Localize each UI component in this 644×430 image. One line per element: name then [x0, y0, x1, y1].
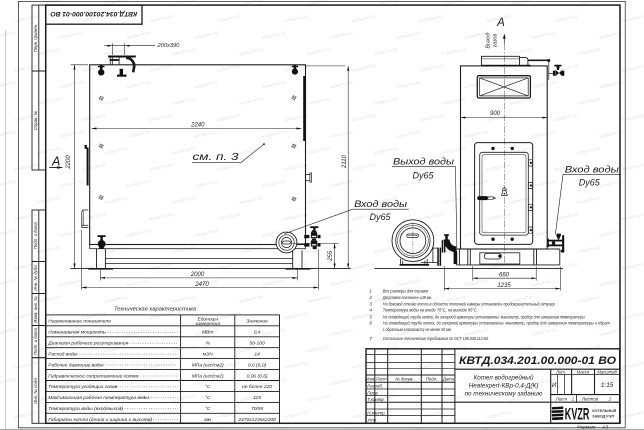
svg-text:Dy65: Dy65: [579, 177, 601, 187]
svg-text:1:15: 1:15: [601, 382, 614, 389]
svg-text:2000: 2000: [190, 272, 205, 278]
svg-text:50-100: 50-100: [249, 341, 265, 347]
svg-text:14: 14: [254, 351, 260, 357]
svg-text:Температура воды на входе 70°С: Температура воды на входе 70°С, на выход…: [383, 308, 478, 313]
svg-text:Dy65: Dy65: [369, 212, 391, 222]
svg-text:мм: мм: [204, 418, 211, 423]
svg-text:Масса: Масса: [577, 370, 590, 375]
svg-text:А: А: [51, 154, 60, 168]
svg-text:КВТД.034.20100.000-01 ВО: КВТД.034.20100.000-01 ВО: [50, 10, 137, 17]
svg-text:Вход воды: Вход воды: [565, 164, 619, 174]
svg-text:На отводящей трубе котла, до: На отводящей трубе котла, до запорной ар…: [383, 320, 610, 326]
svg-text:255: 255: [328, 250, 334, 262]
svg-text:2200: 2200: [66, 155, 72, 170]
svg-text:На подводящей трубе котла, до: На подводящей трубе котла, до запорной а…: [383, 313, 586, 319]
svg-text:2110: 2110: [342, 154, 348, 169]
svg-text:2: 2: [608, 397, 612, 402]
svg-text:КВТД.034.201.00.000-01 ВО: КВТД.034.201.00.000-01 ВО: [459, 355, 616, 367]
svg-text:Значение: Значение: [246, 319, 268, 325]
svg-text:МПа (кгс/см2): МПа (кгс/см2): [192, 362, 224, 368]
svg-text:Температура воды (вход/выход): Температура воды (вход/выход): [48, 406, 123, 412]
svg-text:Инв. № дубл.: Инв. № дубл.: [33, 264, 38, 290]
svg-text:Диапазон рабочего регулировани: Диапазон рабочего регулирования: [47, 341, 128, 347]
svg-text:Разраб.: Разраб.: [367, 384, 383, 389]
svg-text:0,06 (0,6): 0,06 (0,6): [247, 373, 268, 379]
svg-text:2470х1235х2200: 2470х1235х2200: [237, 417, 276, 423]
svg-text:измерения: измерения: [195, 322, 220, 327]
svg-text:Heatexpert-КВр-0,4-Д(К): Heatexpert-КВр-0,4-Д(К): [469, 383, 539, 390]
svg-text:Формат: Формат: [577, 424, 595, 429]
svg-text:Взам. инв. №: Взам. инв. №: [33, 296, 38, 323]
svg-text:KVZR: KVZR: [565, 406, 590, 424]
svg-text:200х390: 200х390: [157, 43, 181, 49]
svg-text:Лист: Лист: [375, 377, 387, 382]
svg-text:Листов: Листов: [581, 397, 599, 402]
svg-text:Лит.: Лит.: [555, 370, 566, 375]
svg-text:2240: 2240: [190, 122, 205, 128]
svg-text:Все размеры для справок: Все размеры для справок: [383, 288, 429, 293]
svg-text:°С: °С: [205, 395, 211, 401]
svg-text:м3/ч: м3/ч: [203, 351, 213, 357]
svg-text:Н.контр.: Н.контр.: [367, 411, 386, 416]
svg-text:900: 900: [490, 111, 501, 117]
svg-text:Инв. № подл.: Инв. № подл.: [33, 377, 38, 404]
svg-text:%: %: [206, 341, 211, 347]
svg-text:Максимальная рабочая температу: Максимальная рабочая температура воды: [48, 395, 149, 401]
svg-text:115: 115: [253, 395, 261, 401]
svg-text:МПа (кгс/см2): МПа (кгс/см2): [192, 373, 224, 379]
svg-text:МВт: МВт: [202, 330, 213, 336]
svg-text:0,4: 0,4: [254, 330, 261, 336]
svg-text:Котел водогрейный: Котел водогрейный: [474, 374, 534, 382]
svg-text:2470: 2470: [194, 282, 209, 288]
svg-text:Масштаб: Масштаб: [597, 370, 617, 375]
svg-text:Гидравлическое сопротивление к: Гидравлическое сопротивление котла: [48, 373, 138, 379]
svg-text:см. п. 3: см. п. 3: [193, 152, 240, 163]
svg-text:660: 660: [499, 272, 510, 278]
svg-text:Остальные технические требован: Остальные технические требования по ОСТ …: [383, 336, 489, 341]
svg-text:Температура уходящих газов: Температура уходящих газов: [48, 384, 117, 390]
svg-text:ЗАВОД РЭП: ЗАВОД РЭП: [592, 414, 614, 418]
svg-text:°С: °С: [205, 406, 211, 412]
svg-text:Перв. примен.: Перв. примен.: [33, 24, 38, 53]
svg-text:Пров.: Пров.: [367, 390, 379, 395]
svg-text:Расход воды: Расход воды: [48, 351, 77, 357]
svg-text:Утв.: Утв.: [367, 417, 377, 422]
svg-text:Дата: Дата: [442, 377, 455, 382]
svg-text:Справ. №: Справ. №: [33, 110, 38, 130]
svg-text:Допустимое отклонение ±100 мм.: Допустимое отклонение ±100 мм.: [382, 295, 432, 300]
svg-text:Подп. и дата: Подп. и дата: [33, 328, 38, 356]
svg-text:Подп.: Подп.: [426, 377, 437, 382]
svg-text:70/95: 70/95: [251, 406, 264, 412]
svg-text:°С: °С: [205, 384, 211, 390]
svg-text:Т.контр.: Т.контр.: [367, 397, 385, 402]
svg-text:Лист: Лист: [555, 397, 568, 402]
svg-text:Dy65: Dy65: [412, 171, 434, 181]
svg-text:1235: 1235: [497, 283, 511, 289]
svg-text:Изм: Изм: [366, 377, 374, 382]
svg-text:не более 220: не более 220: [242, 384, 272, 390]
svg-text:с обратным клапаном Dy не мене: с обратным клапаном Dy не менее 50 мм.: [383, 327, 452, 332]
svg-text:Номинальная мощность: Номинальная мощность: [48, 330, 106, 336]
svg-text:Подп. и дата: Подп. и дата: [33, 222, 38, 250]
svg-text:А3: А3: [601, 424, 608, 429]
svg-text:А: А: [496, 17, 505, 29]
svg-text:по техническому заданию: по техническому заданию: [465, 389, 543, 397]
svg-text:КОТЕЛЬНЫЙ: КОТЕЛЬНЫЙ: [592, 409, 616, 413]
svg-text:№ докум.: № докум.: [395, 377, 413, 382]
svg-text:Наименование показателя: Наименование показателя: [48, 319, 111, 325]
svg-text:Рабочее давление воды: Рабочее давление воды: [48, 362, 103, 368]
svg-text:На боковой стенке котла в обла: На боковой стенке котла в области топочн…: [383, 300, 555, 306]
svg-text:0,6 (6,0): 0,6 (6,0): [248, 362, 267, 368]
svg-text:Габариты котла (длина х ширина: Габариты котла (длина х ширина х высота): [48, 417, 152, 423]
svg-text:газов: газов: [493, 34, 499, 48]
svg-text:Вход воды: Вход воды: [354, 199, 407, 209]
svg-text:2: 2: [368, 295, 372, 300]
svg-text:Техническая характеристика: Техническая характеристика: [114, 307, 197, 313]
svg-text:Выход: Выход: [486, 32, 492, 48]
svg-text:Выход воды: Выход воды: [393, 157, 454, 167]
svg-text:И: И: [552, 382, 557, 389]
